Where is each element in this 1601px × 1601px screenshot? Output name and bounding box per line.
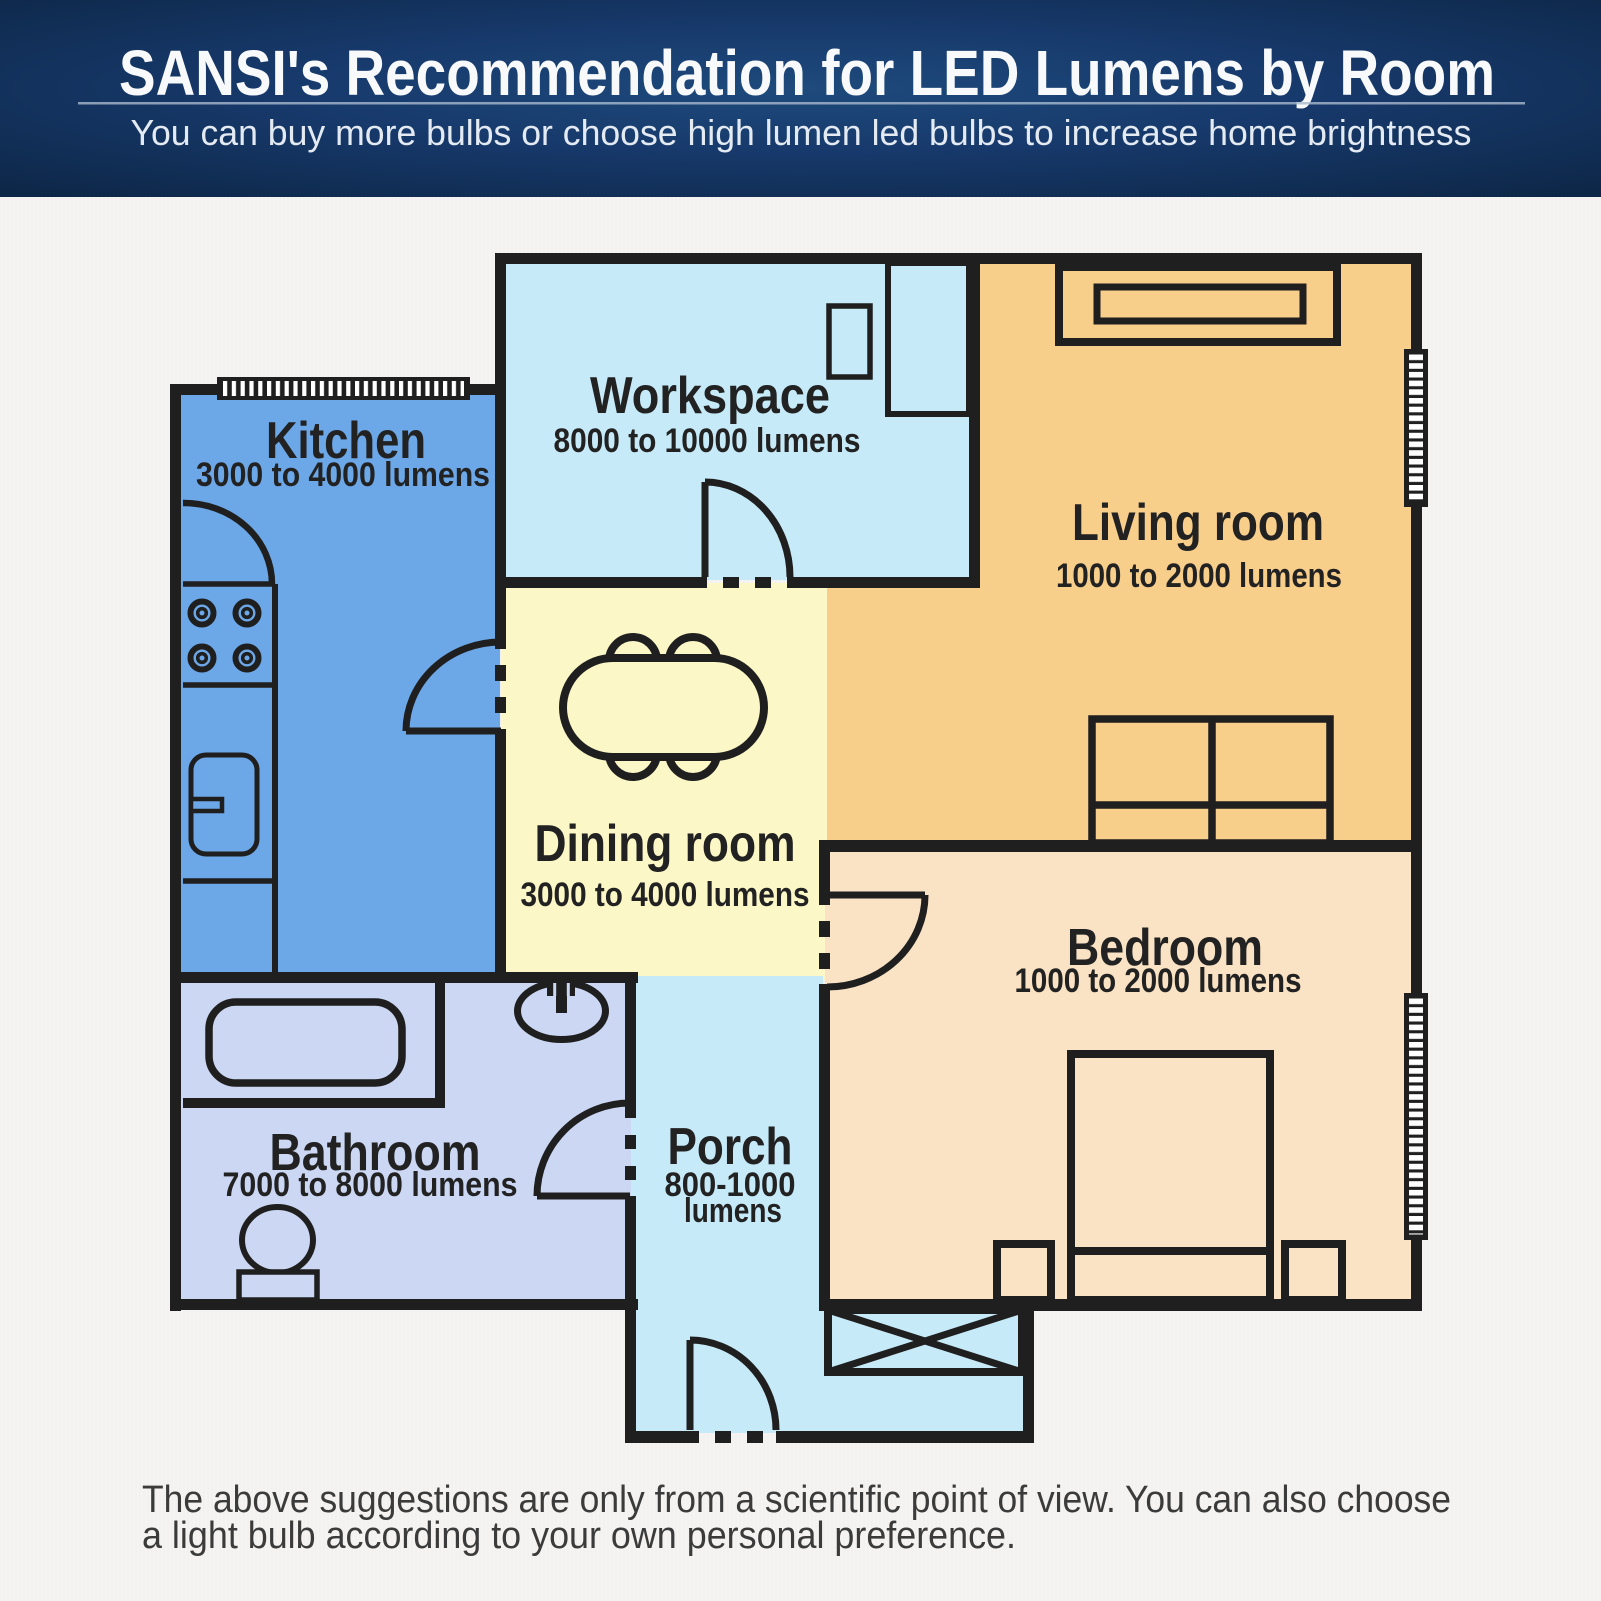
svg-text:7000 to 8000 lumens: 7000 to 8000 lumens — [223, 1166, 518, 1204]
svg-text:Dining room: Dining room — [535, 815, 796, 873]
svg-text:8000 to 10000 lumens: 8000 to 10000 lumens — [554, 422, 861, 460]
svg-text:a light bulb according to your: a light bulb according to your own perso… — [142, 1515, 1016, 1557]
svg-text:3000 to 4000 lumens: 3000 to 4000 lumens — [521, 876, 810, 914]
svg-text:lumens: lumens — [684, 1192, 782, 1230]
svg-text:1000 to 2000 lumens: 1000 to 2000 lumens — [1015, 962, 1302, 1000]
svg-text:1000 to 2000 lumens: 1000 to 2000 lumens — [1056, 557, 1342, 595]
svg-text:3000 to 4000 lumens: 3000 to 4000 lumens — [196, 456, 490, 494]
svg-text:SANSI's Recommendation for LED: SANSI's Recommendation for LED Lumens by… — [119, 37, 1495, 109]
svg-text:You can buy more bulbs or choo: You can buy more bulbs or choose high lu… — [131, 112, 1472, 153]
svg-text:Living room: Living room — [1072, 494, 1324, 552]
svg-text:Workspace: Workspace — [590, 367, 830, 425]
